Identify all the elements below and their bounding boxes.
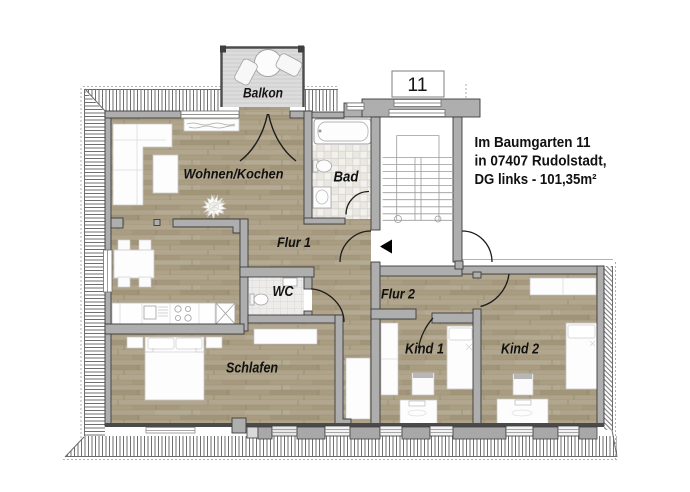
svg-text:Balkon: Balkon [243, 86, 283, 101]
svg-text:DG links - 101,35m²: DG links - 101,35m² [475, 172, 597, 188]
svg-text:Schlafen: Schlafen [226, 361, 278, 377]
svg-text:Flur 1: Flur 1 [277, 235, 311, 250]
svg-text:Kind 2: Kind 2 [501, 342, 539, 358]
svg-text:in 07407 Rudolstadt,: in 07407 Rudolstadt, [475, 154, 607, 170]
svg-text:Bad: Bad [334, 169, 360, 186]
svg-text:WC: WC [273, 284, 294, 300]
svg-text:Flur 2: Flur 2 [381, 287, 415, 302]
svg-text:11: 11 [407, 74, 427, 96]
svg-text:Wohnen/Kochen: Wohnen/Kochen [184, 166, 284, 182]
svg-text:Im Baumgarten 11: Im Baumgarten 11 [475, 135, 591, 151]
svg-text:Kind 1: Kind 1 [405, 342, 444, 358]
